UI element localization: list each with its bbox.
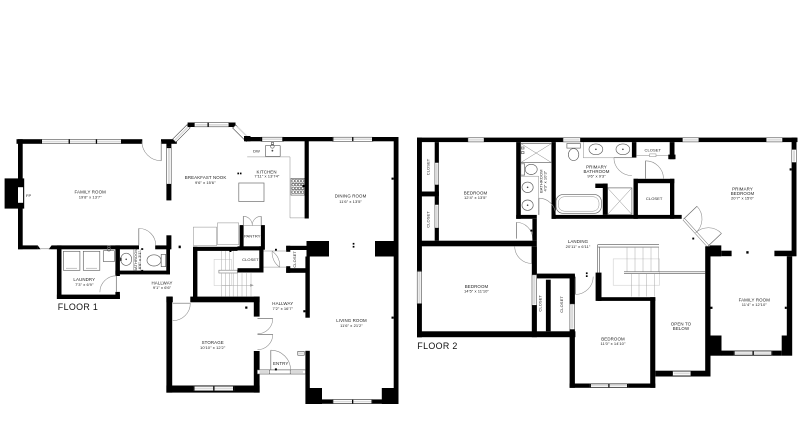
svg-text:FP: FP bbox=[26, 193, 32, 198]
svg-text:BELOW: BELOW bbox=[673, 326, 690, 331]
svg-text:14'5" x 11'10": 14'5" x 11'10" bbox=[464, 288, 489, 293]
svg-text:20'7" x 15'0": 20'7" x 15'0" bbox=[731, 196, 754, 201]
svg-text:11'6" x 13'5": 11'6" x 13'5" bbox=[339, 199, 362, 204]
svg-text:ENTRY: ENTRY bbox=[273, 361, 288, 366]
svg-text:4'3" x 10'3": 4'3" x 10'3" bbox=[543, 170, 548, 191]
svg-text:CLOSET: CLOSET bbox=[426, 211, 431, 228]
svg-text:20'11" x 6'11": 20'11" x 6'11" bbox=[566, 244, 591, 249]
svg-text:6'6" x 3'1": 6'6" x 3'1" bbox=[137, 250, 142, 269]
svg-text:7'2" x 16'7": 7'2" x 16'7" bbox=[272, 306, 293, 311]
svg-text:FLOOR 2: FLOOR 2 bbox=[417, 341, 457, 351]
svg-text:9'1" x 6'6": 9'1" x 6'6" bbox=[153, 285, 172, 290]
svg-text:11'0" x 14'10": 11'0" x 14'10" bbox=[601, 341, 626, 346]
svg-text:CLOSET: CLOSET bbox=[538, 295, 543, 312]
svg-text:CLOSET: CLOSET bbox=[292, 251, 297, 268]
svg-text:DINING ROOM: DINING ROOM bbox=[335, 193, 367, 198]
svg-text:CLOSET: CLOSET bbox=[645, 148, 662, 153]
svg-text:FLOOR 1: FLOOR 1 bbox=[58, 302, 98, 312]
svg-text:DW: DW bbox=[253, 148, 260, 153]
svg-text:12'4" x 13'5": 12'4" x 13'5" bbox=[464, 195, 487, 200]
svg-text:11'6" x 21'2": 11'6" x 21'2" bbox=[340, 323, 363, 328]
svg-text:19'8" x 13'7": 19'8" x 13'7" bbox=[79, 194, 102, 199]
svg-text:CLOSET: CLOSET bbox=[559, 296, 564, 313]
svg-text:9'6" x 9'3": 9'6" x 9'3" bbox=[587, 174, 606, 179]
svg-text:PANTRY: PANTRY bbox=[244, 234, 261, 239]
svg-text:7'11" x 13'74": 7'11" x 13'74" bbox=[254, 174, 279, 179]
svg-text:CLOSET: CLOSET bbox=[646, 196, 663, 201]
svg-text:11'4" x 12'10": 11'4" x 12'10" bbox=[742, 302, 767, 307]
svg-text:CLOSET: CLOSET bbox=[426, 158, 431, 175]
svg-text:9'6" x 15'6": 9'6" x 15'6" bbox=[195, 180, 216, 185]
svg-text:10'10" x 12'2": 10'10" x 12'2" bbox=[200, 345, 226, 350]
svg-text:7'3" x 6'9": 7'3" x 6'9" bbox=[75, 282, 94, 287]
svg-text:CLOSET: CLOSET bbox=[242, 257, 259, 262]
